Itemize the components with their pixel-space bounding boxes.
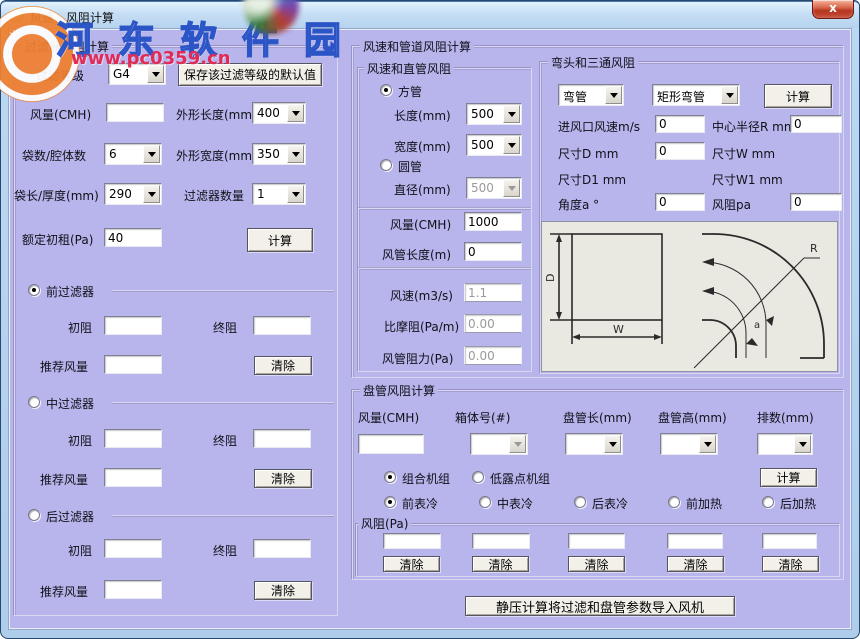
duct-outer-title: 风速和管道风阻计算 bbox=[360, 40, 474, 54]
coil-rows-combo[interactable] bbox=[757, 433, 813, 455]
diagram-d-label: D bbox=[544, 274, 557, 282]
import-to-fan-button[interactable]: 静压计算将过滤和盘管参数导入风机 bbox=[465, 596, 735, 616]
dim-w1-label: 尺寸W1 mm bbox=[712, 171, 783, 188]
coil-length-combo[interactable] bbox=[565, 433, 623, 455]
coil-flow-input[interactable] bbox=[358, 434, 424, 454]
filter-count-combo[interactable]: 1 bbox=[252, 183, 306, 205]
elbow-shape-combo[interactable]: 矩形弯管 bbox=[652, 84, 740, 106]
duct-length-combo[interactable]: 500 bbox=[466, 103, 522, 125]
section-divider bbox=[112, 515, 334, 516]
init-res-label: 初阻 bbox=[68, 542, 92, 559]
filter-baglen-combo[interactable]: 290 bbox=[104, 183, 162, 205]
pre-recommend-input[interactable] bbox=[104, 355, 162, 374]
coil-res-input-1[interactable] bbox=[383, 533, 441, 549]
mid-cooling-label: 中表冷 bbox=[497, 495, 533, 512]
center-radius-label: 中心半径R mm bbox=[712, 118, 796, 135]
front-heating-radio[interactable] bbox=[668, 496, 680, 508]
coil-clear-button-5[interactable]: 清除 bbox=[762, 556, 819, 572]
round-duct-radio[interactable] bbox=[380, 159, 392, 171]
chevron-down-icon[interactable] bbox=[143, 145, 160, 163]
filter-rated-label: 额定初租(Pa) bbox=[22, 231, 93, 248]
elbow-type-combo[interactable]: 弯管 bbox=[558, 84, 624, 106]
post-init-input[interactable] bbox=[104, 539, 162, 558]
mid-final-input[interactable] bbox=[253, 429, 311, 448]
coil-clear-button-4[interactable]: 清除 bbox=[667, 556, 724, 572]
combined-unit-radio[interactable] bbox=[384, 471, 396, 483]
filter-grade-value: G4 bbox=[109, 64, 146, 84]
post-filter-radio[interactable] bbox=[28, 509, 40, 521]
coil-clear-button-1[interactable]: 清除 bbox=[383, 556, 440, 572]
duct-resistance-label: 风管阻力(Pa) bbox=[382, 350, 453, 367]
rear-cooling-radio[interactable] bbox=[574, 496, 586, 508]
recommend-flow-label: 推荐风量 bbox=[40, 471, 88, 488]
save-grade-defaults-button[interactable]: 保存该过滤等级的默认值 bbox=[178, 63, 322, 86]
chevron-down-icon[interactable] bbox=[147, 65, 164, 83]
coil-res-input-5[interactable] bbox=[762, 533, 817, 549]
wind-speed-label: 风速(m3/s) bbox=[390, 287, 453, 304]
inlet-speed-label: 进风口风速m/s bbox=[558, 118, 640, 135]
final-res-label: 终阻 bbox=[213, 432, 237, 449]
duct-len-m-input[interactable] bbox=[464, 242, 522, 261]
filter-count-label: 过滤器数量 bbox=[184, 187, 244, 204]
chevron-down-icon[interactable] bbox=[604, 435, 621, 453]
mid-clear-button[interactable]: 清除 bbox=[254, 469, 312, 488]
dim-d-label: 尺寸D mm bbox=[558, 145, 618, 162]
duct-len-m-label: 风管长度(m) bbox=[382, 246, 451, 263]
coil-title: 盘管风阻计算 bbox=[360, 384, 438, 398]
pre-final-input[interactable] bbox=[253, 316, 311, 335]
front-cooling-radio[interactable] bbox=[384, 496, 396, 508]
coil-clear-button-3[interactable]: 清除 bbox=[568, 556, 625, 572]
front-cooling-label: 前表冷 bbox=[402, 495, 438, 512]
duct-elbow-diagram: D W R a bbox=[541, 221, 838, 372]
round-duct-label: 圆管 bbox=[398, 158, 422, 175]
angle-label: 角度a ° bbox=[558, 196, 599, 213]
filter-grade-combo[interactable]: G4 bbox=[108, 63, 166, 85]
pre-clear-button[interactable]: 清除 bbox=[254, 356, 312, 375]
wind-speed-output bbox=[464, 283, 522, 302]
filter-flow-input[interactable] bbox=[106, 103, 164, 122]
mid-cooling-radio[interactable] bbox=[479, 496, 491, 508]
dim-d-input[interactable] bbox=[655, 142, 705, 160]
coil-res-input-2[interactable] bbox=[472, 533, 530, 549]
duct-width-combo[interactable]: 500 bbox=[466, 134, 522, 156]
friction-label: 比摩阻(Pa/m) bbox=[384, 318, 459, 335]
chevron-down-icon[interactable] bbox=[605, 86, 622, 104]
inlet-speed-input[interactable] bbox=[655, 115, 705, 133]
section-divider bbox=[112, 402, 334, 403]
chevron-down-icon bbox=[509, 435, 526, 453]
friction-output bbox=[464, 314, 522, 333]
duct-length-label: 长度(mm) bbox=[394, 107, 451, 124]
rear-heating-radio[interactable] bbox=[762, 496, 774, 508]
coil-height-header: 盘管高(mm) bbox=[658, 409, 727, 426]
coil-height-combo[interactable] bbox=[660, 433, 718, 455]
coil-calc-button[interactable]: 计算 bbox=[760, 468, 817, 487]
chevron-down-icon[interactable] bbox=[143, 185, 160, 203]
chevron-down-icon bbox=[503, 179, 520, 197]
rear-heating-label: 后加热 bbox=[780, 495, 816, 512]
chevron-down-icon[interactable] bbox=[503, 136, 520, 154]
filter-width-combo[interactable]: 350 bbox=[252, 143, 306, 165]
filter-grade-label: 过滤等级 bbox=[36, 67, 84, 84]
elbow-res-input[interactable] bbox=[790, 193, 842, 211]
mid-recommend-input[interactable] bbox=[104, 468, 162, 487]
center-radius-input[interactable] bbox=[790, 115, 842, 133]
low-dewpoint-label: 低露点机组 bbox=[490, 470, 550, 487]
chevron-down-icon[interactable] bbox=[287, 185, 304, 203]
front-heating-label: 前加热 bbox=[686, 495, 722, 512]
filter-flow-label: 风量(CMH) bbox=[30, 106, 91, 123]
diagram-drawing: D W R a bbox=[542, 222, 837, 371]
dim-w-label: 尺寸W mm bbox=[712, 145, 775, 162]
duct-diameter-combo: 500 bbox=[466, 177, 522, 199]
filter-calc-button[interactable]: 计算 bbox=[247, 228, 313, 252]
init-res-label: 初阻 bbox=[68, 319, 92, 336]
post-filter-label: 后过滤器 bbox=[46, 508, 94, 525]
section-divider bbox=[112, 290, 334, 291]
filter-width-label: 外形宽度(mm) bbox=[176, 147, 257, 164]
pre-filter-radio[interactable] bbox=[28, 284, 40, 296]
rear-cooling-label: 后表冷 bbox=[592, 495, 628, 512]
recommend-flow-label: 推荐风量 bbox=[40, 358, 88, 375]
square-duct-radio[interactable] bbox=[380, 84, 392, 96]
app-window: 风速、风阻计算 x 过滤器风阻计算 过滤等级 G4 保存该过滤等级的默认值 风量… bbox=[0, 0, 860, 639]
angle-input[interactable] bbox=[655, 193, 705, 211]
close-button[interactable]: x bbox=[812, 0, 854, 19]
init-res-label: 初阻 bbox=[68, 432, 92, 449]
chevron-down-icon[interactable] bbox=[794, 435, 811, 453]
coil-res-input-4[interactable] bbox=[667, 533, 723, 549]
duct-width-label: 宽度(mm) bbox=[394, 138, 451, 155]
title-bar: 风速、风阻计算 bbox=[1, 1, 859, 28]
duct-diameter-label: 直径(mm) bbox=[394, 181, 451, 198]
diagram-r-label: R bbox=[810, 242, 818, 255]
final-res-label: 终阻 bbox=[213, 542, 237, 559]
coil-box-header: 箱体号(#) bbox=[455, 409, 510, 426]
post-recommend-input[interactable] bbox=[104, 580, 162, 599]
combined-unit-label: 组合机组 bbox=[402, 470, 450, 487]
filter-baglen-label: 袋长/厚度(mm) bbox=[14, 187, 99, 204]
final-res-label: 终阻 bbox=[213, 319, 237, 336]
mid-init-input[interactable] bbox=[104, 429, 162, 448]
coil-flow-header: 风量(CMH) bbox=[358, 409, 419, 426]
coil-length-header: 盘管长(mm) bbox=[563, 409, 632, 426]
elbow-res-label: 风阻pa bbox=[712, 196, 751, 213]
filter-length-combo[interactable]: 400 bbox=[252, 102, 306, 124]
elbow-calc-button[interactable]: 计算 bbox=[764, 84, 832, 108]
recommend-flow-label: 推荐风量 bbox=[40, 583, 88, 600]
coil-res-input-3[interactable] bbox=[568, 533, 625, 549]
chevron-down-icon[interactable] bbox=[699, 435, 716, 453]
square-duct-label: 方管 bbox=[398, 83, 422, 100]
filter-length-label: 外形长度(mm) bbox=[176, 106, 257, 123]
coil-box-combo bbox=[470, 433, 528, 455]
elbow-title: 弯头和三通风阻 bbox=[548, 56, 638, 70]
chevron-down-icon[interactable] bbox=[287, 104, 304, 122]
mid-filter-radio[interactable] bbox=[28, 396, 40, 408]
diagram-a-label: a bbox=[754, 320, 760, 331]
duct-resistance-output bbox=[464, 346, 522, 365]
post-final-input[interactable] bbox=[253, 539, 311, 558]
coil-rows-header: 排数(mm) bbox=[757, 409, 814, 426]
chevron-down-icon[interactable] bbox=[721, 86, 738, 104]
low-dewpoint-radio[interactable] bbox=[472, 471, 484, 483]
diagram-w-label: W bbox=[613, 323, 624, 336]
app-icon bbox=[9, 8, 24, 23]
straight-duct-title: 风速和直管风阻 bbox=[364, 62, 454, 76]
chevron-down-icon[interactable] bbox=[287, 145, 304, 163]
filter-group-title: 过滤器风阻计算 bbox=[22, 40, 112, 54]
filter-rated-input[interactable] bbox=[104, 228, 162, 247]
post-clear-button[interactable]: 清除 bbox=[254, 581, 312, 600]
coil-res-label: 风阻(Pa) bbox=[358, 517, 411, 531]
filter-bags-label: 袋数/腔体数 bbox=[22, 147, 86, 164]
duct-flow-label: 风量(CMH) bbox=[390, 216, 451, 233]
pre-filter-label: 前过滤器 bbox=[46, 283, 94, 300]
window-title: 风速、风阻计算 bbox=[30, 9, 114, 26]
filter-bags-combo[interactable]: 6 bbox=[104, 143, 162, 165]
dim-d1-label: 尺寸D1 mm bbox=[558, 171, 626, 188]
chevron-down-icon[interactable] bbox=[503, 105, 520, 123]
duct-flow-input[interactable] bbox=[464, 212, 522, 231]
mid-filter-label: 中过滤器 bbox=[46, 395, 94, 412]
pre-init-input[interactable] bbox=[104, 316, 162, 335]
coil-clear-button-2[interactable]: 清除 bbox=[472, 556, 529, 572]
